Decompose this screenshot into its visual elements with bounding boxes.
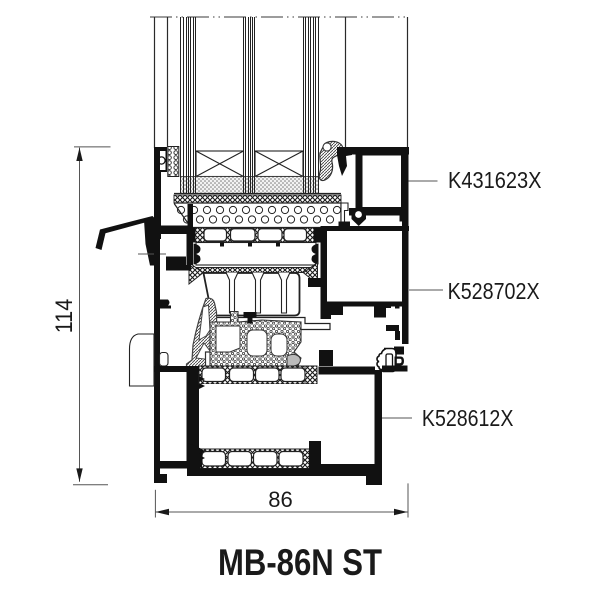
svg-text:MB-86N ST: MB-86N ST (218, 542, 382, 583)
svg-text:K528612X: K528612X (422, 405, 514, 431)
svg-text:K431623X: K431623X (448, 167, 542, 193)
svg-text:K528702X: K528702X (448, 278, 540, 304)
svg-text:86: 86 (268, 487, 292, 512)
svg-text:114: 114 (51, 299, 78, 334)
